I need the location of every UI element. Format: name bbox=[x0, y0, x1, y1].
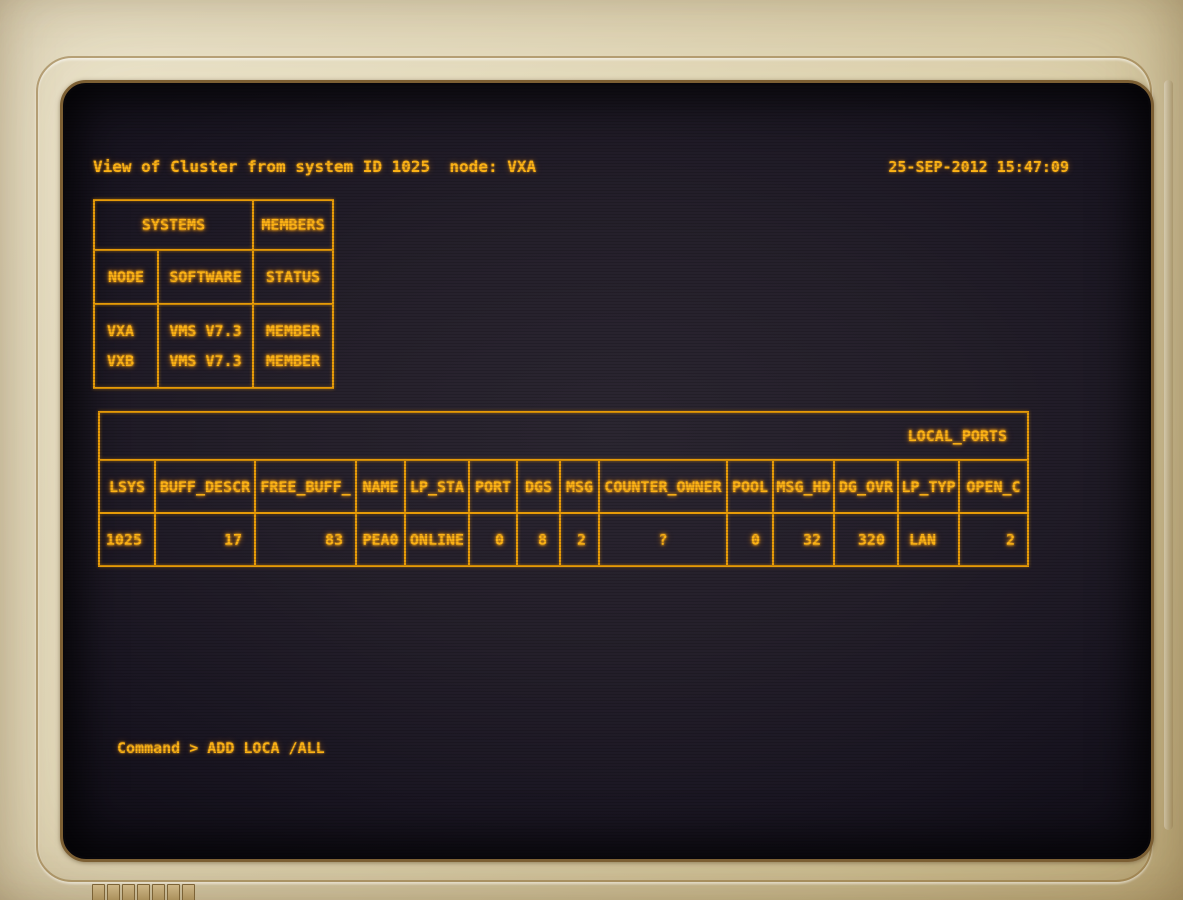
cell-dgs: 8 bbox=[518, 514, 561, 565]
cluster-view-title: View of Cluster from system ID 1025 node… bbox=[93, 157, 536, 176]
software-value: VMS V7.3 bbox=[169, 318, 241, 345]
status-value: MEMBER bbox=[266, 318, 320, 345]
cell-open-c: 2 bbox=[960, 514, 1027, 565]
col-header-dgs: DGS bbox=[518, 461, 561, 514]
vent-grille bbox=[92, 884, 195, 900]
screenshot-canvas: View of Cluster from system ID 1025 node… bbox=[0, 0, 1183, 900]
local-ports-title: LOCAL_PORTS bbox=[100, 413, 1027, 461]
crt-screen: View of Cluster from system ID 1025 node… bbox=[60, 80, 1154, 862]
col-header-lp-typ: LP_TYP bbox=[899, 461, 960, 514]
vent-slot bbox=[152, 884, 165, 900]
cell-lsys: 1025 bbox=[100, 514, 156, 565]
col-header-free-buff: FREE_BUFF_ bbox=[256, 461, 357, 514]
command-input[interactable]: ADD LOCA /ALL bbox=[207, 739, 324, 757]
cell-lp-sta: ONLINE bbox=[406, 514, 470, 565]
cell-msg-hd: 32 bbox=[774, 514, 835, 565]
group-header-systems: SYSTEMS bbox=[95, 201, 254, 251]
col-header-port: PORT bbox=[470, 461, 518, 514]
col-header-buff-descr: BUFF_DESCR bbox=[156, 461, 256, 514]
software-value: VMS V7.3 bbox=[169, 348, 241, 375]
cell-free-buff: 83 bbox=[256, 514, 357, 565]
group-header-members: MEMBERS bbox=[254, 201, 332, 251]
col-header-software: SOFTWARE bbox=[159, 251, 254, 305]
cell-name: PEA0 bbox=[357, 514, 406, 565]
command-prompt: Command > bbox=[117, 739, 198, 757]
col-header-node: NODE bbox=[95, 251, 159, 305]
vent-slot bbox=[122, 884, 135, 900]
col-header-dg-ovr: DG_OVR bbox=[835, 461, 899, 514]
col-header-open-c: OPEN_C bbox=[960, 461, 1027, 514]
col-header-name: NAME bbox=[357, 461, 406, 514]
local-ports-table: LOCAL_PORTS LSYS BUFF_DESCR FREE_BUFF_ N… bbox=[98, 411, 1029, 567]
col-header-counter-owner: COUNTER_OWNER bbox=[600, 461, 728, 514]
cell-pool: 0 bbox=[728, 514, 774, 565]
cell-buff-descr: 17 bbox=[156, 514, 256, 565]
node-value: VXB bbox=[107, 348, 134, 375]
vent-slot bbox=[92, 884, 105, 900]
cell-dg-ovr: 320 bbox=[835, 514, 899, 565]
vent-slot bbox=[167, 884, 180, 900]
col-header-lp-sta: LP_STA bbox=[406, 461, 470, 514]
col-header-pool: POOL bbox=[728, 461, 774, 514]
col-header-msg-hd: MSG_HD bbox=[774, 461, 835, 514]
screen-timestamp: 25-SEP-2012 15:47:09 bbox=[888, 158, 1069, 176]
crt-monitor-case: View of Cluster from system ID 1025 node… bbox=[0, 0, 1183, 900]
vent-slot bbox=[137, 884, 150, 900]
col-header-msg: MSG bbox=[561, 461, 600, 514]
cell-msg: 2 bbox=[561, 514, 600, 565]
cell-lp-typ: LAN bbox=[899, 514, 960, 565]
vent-slot bbox=[182, 884, 195, 900]
status-column-values: MEMBER MEMBER bbox=[254, 305, 332, 387]
software-column-values: VMS V7.3 VMS V7.3 bbox=[159, 305, 254, 387]
command-line: Command > ADD LOCA /ALL bbox=[117, 739, 325, 757]
case-seam bbox=[1164, 80, 1173, 830]
node-column-values: VXA VXB bbox=[95, 305, 159, 387]
col-header-lsys: LSYS bbox=[100, 461, 156, 514]
screen-glass: View of Cluster from system ID 1025 node… bbox=[65, 85, 1149, 857]
status-value: MEMBER bbox=[266, 348, 320, 375]
node-value: VXA bbox=[107, 318, 134, 345]
vent-slot bbox=[107, 884, 120, 900]
systems-members-table: SYSTEMS MEMBERS NODE SOFTWARE STATUS VXA… bbox=[93, 199, 334, 389]
cell-port: 0 bbox=[470, 514, 518, 565]
cell-counter-owner: ? bbox=[600, 514, 728, 565]
col-header-status: STATUS bbox=[254, 251, 332, 305]
